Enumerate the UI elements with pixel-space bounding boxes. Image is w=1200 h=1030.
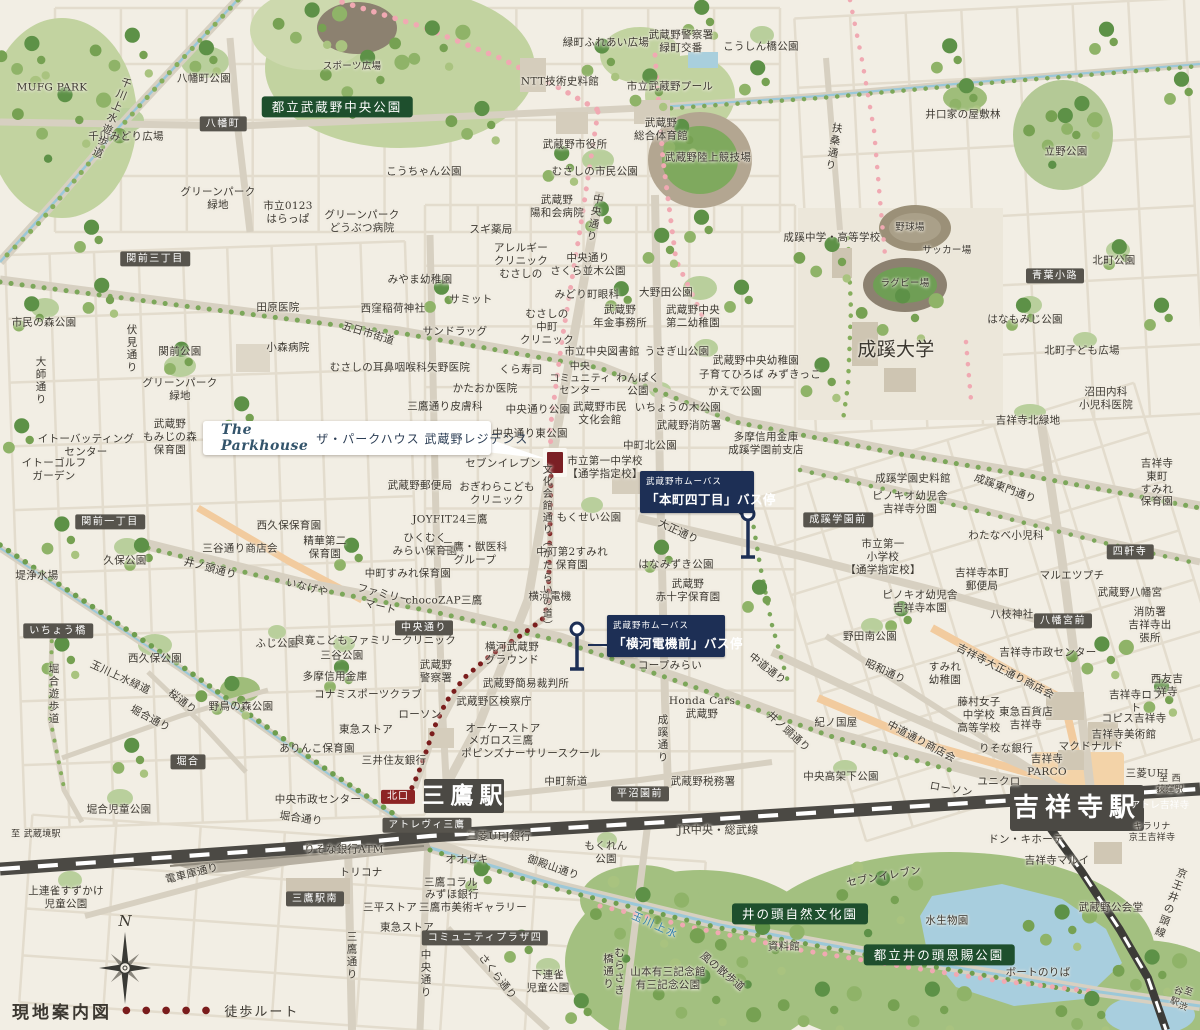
bus-line-name: 武蔵野市ムーバス [613,619,719,631]
map-canvas: MUFG PARK八幡町公園千川みどり広場八幡町都立武蔵野中央公園スポーツ広場こ… [0,0,1200,1030]
compass-icon [96,930,154,1006]
legend-route-label: 徒歩ルート [224,1001,299,1020]
property-logo-text: The Parkhouse [221,422,308,454]
bus-stop-name: 「本町四丁目」バス停 [646,489,748,508]
property-name-box: The Parkhouse ザ・パークハウス 武蔵野レジデンス [203,421,491,455]
map-base-layer [0,0,1200,1030]
bus-stop-name: 「横河電機前」バス停 [613,633,719,652]
bus-line-name: 武蔵野市ムーバス [646,475,748,487]
map-legend: 現地案内図 ● ● ● ● ● 徒歩ルート [12,998,299,1023]
property-name-text: ザ・パークハウス 武蔵野レジデンス [316,430,528,447]
walk-route-dots-icon: ● ● ● ● ● [122,1005,214,1016]
legend-title: 現地案内図 [12,998,112,1023]
bus-stop-callout-yokogawa: 武蔵野市ムーバス 「横河電機前」バス停 [607,615,725,657]
compass-rose: N [96,912,154,1010]
bus-stop-callout-honcho4: 武蔵野市ムーバス 「本町四丁目」バス停 [640,471,754,513]
compass-north-label: N [96,912,154,930]
